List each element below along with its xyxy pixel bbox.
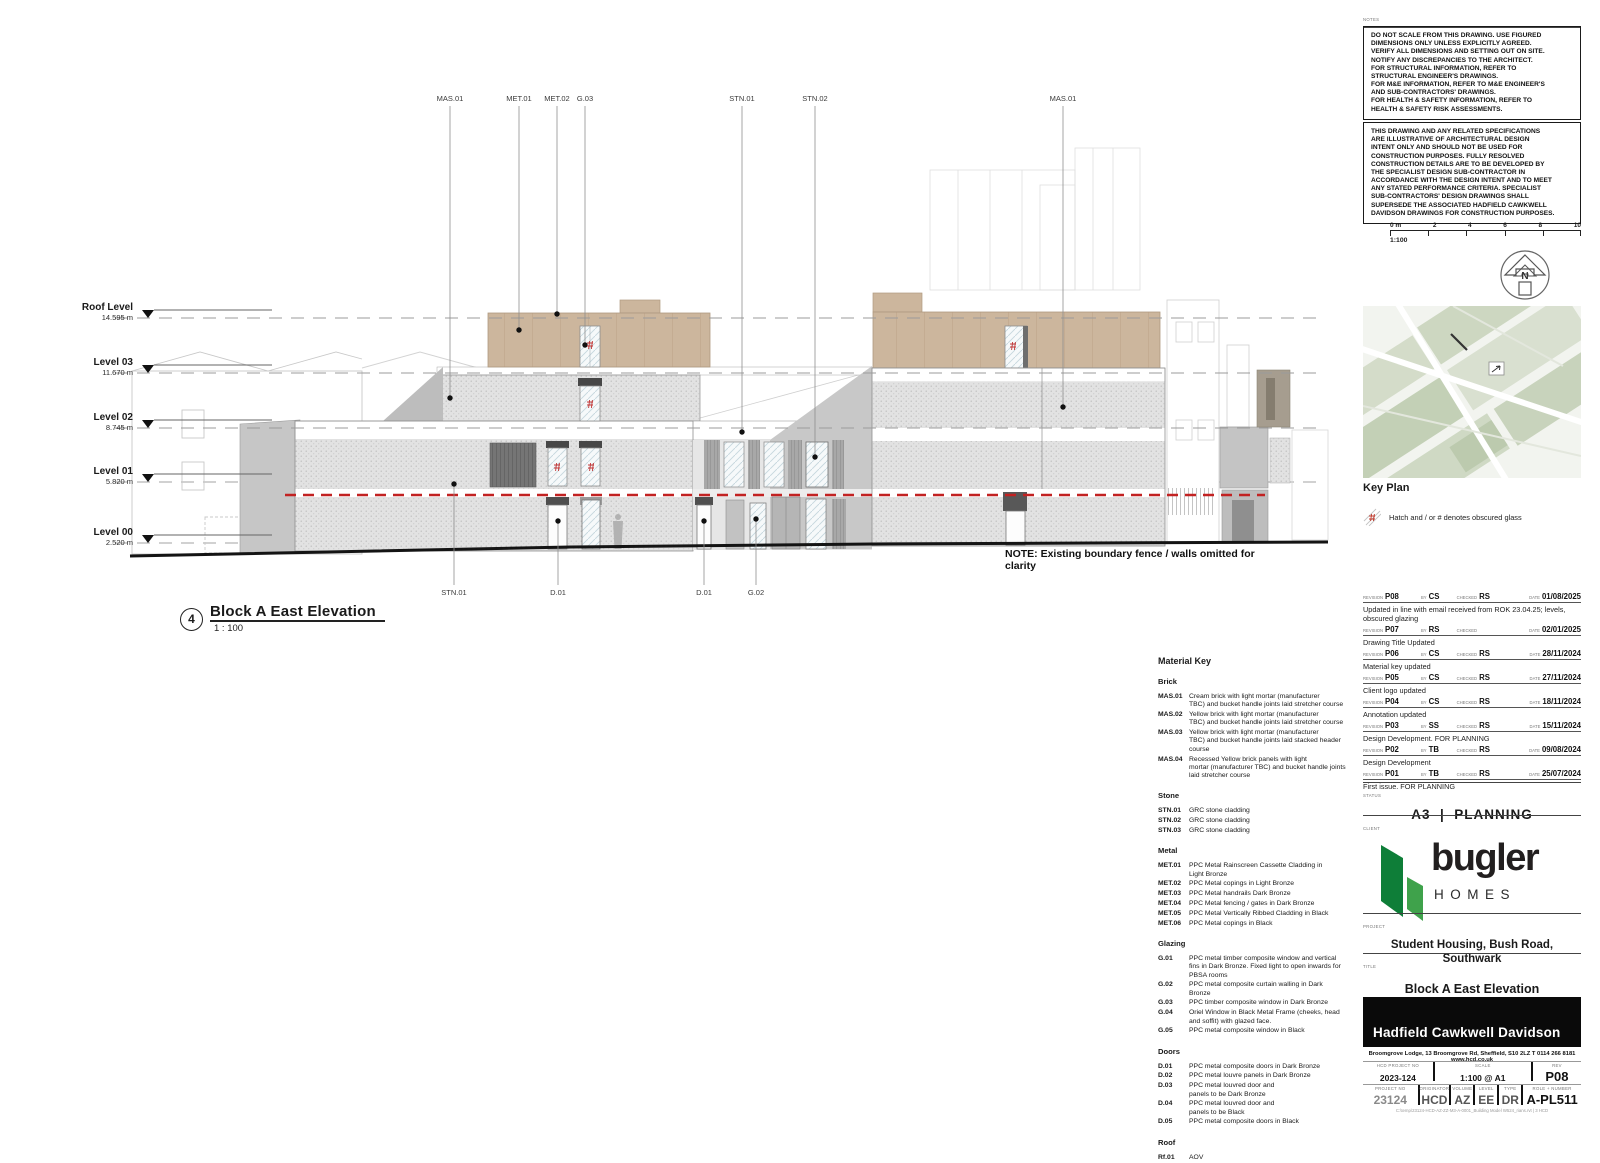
- annotation-g03: G.03: [577, 94, 593, 103]
- material-key-item: D.04PPC metal louvred door and panels to…: [1158, 1100, 1354, 1117]
- architect-logo-box: Hadfield Cawkwell Davidson: [1363, 997, 1581, 1047]
- material-key-item: G.05PPC metal composite window in Black: [1158, 1027, 1354, 1035]
- field-originator: ORIGINATOR HCD: [1418, 1085, 1450, 1105]
- client-logo-wordmark: bugler: [1431, 837, 1538, 880]
- annotation-mas01-right: MAS.01: [1050, 94, 1077, 103]
- revision-description: Design Development: [1363, 756, 1581, 769]
- material-key-item: MAS.02Yellow brick with light mortar (ma…: [1158, 711, 1354, 728]
- revision-row: REVISIONP08BYCSCHECKEDRSDATE01/08/2025: [1363, 592, 1581, 603]
- hatch-legend-icon: [1363, 508, 1381, 526]
- field-role-number: ROLE + NUMBER A-PL511: [1521, 1085, 1581, 1105]
- revision-row: REVISIONP04BYCSCHECKEDRSDATE18/11/2024: [1363, 697, 1581, 708]
- annotation-d01-b: D.01: [696, 588, 712, 597]
- material-key-item: MET.01PPC Metal Rainscreen Cassette Clad…: [1158, 862, 1354, 879]
- material-key-item: MAS.01Cream brick with light mortar (man…: [1158, 693, 1354, 710]
- scale-tick: 0 m: [1390, 222, 1401, 229]
- viewport-number: 4: [180, 608, 203, 631]
- material-key-item: STN.02GRC stone cladding: [1158, 817, 1354, 825]
- scale-bar: 0 m 2 4 6 8 10 1:100: [1390, 222, 1581, 244]
- revision-description: Drawing Title Updated: [1363, 636, 1581, 649]
- level-label-03: Level 0311.670 m: [33, 357, 133, 377]
- annotation-mas01-left: MAS.01: [437, 94, 464, 103]
- material-key-item: G.04Oriel Window in Black Metal Frame (c…: [1158, 1009, 1354, 1026]
- material-key-item: D.03PPC metal louvred door and panels to…: [1158, 1082, 1354, 1099]
- revision-description: Updated in line with email received from…: [1363, 603, 1581, 625]
- annotation-stn01-top: STN.01: [729, 94, 754, 103]
- key-plan-map-graphic: [1363, 306, 1581, 478]
- revision-description: Design Development. FOR PLANNING: [1363, 732, 1581, 745]
- material-key-item: MET.04PPC Metal fencing / gates in Dark …: [1158, 900, 1354, 908]
- key-plan-map: [1363, 306, 1581, 478]
- material-key-item: G.03PPC timber composite window in Dark …: [1158, 999, 1354, 1007]
- architect-name: Hadfield Cawkwell Davidson: [1373, 1025, 1561, 1040]
- material-key-item: D.05PPC metal composite doors in Black: [1158, 1118, 1354, 1126]
- material-key-item: G.02PPC metal composite curtain walling …: [1158, 981, 1354, 998]
- scale-tick: 2: [1433, 222, 1437, 229]
- background-context-outlines: [930, 148, 1140, 290]
- field-level: LEVEL EE: [1473, 1085, 1497, 1105]
- file-path-footer: C:\temp\23124-HCD-AZ-ZZ-M3-A-0001_Buildi…: [1360, 1108, 1584, 1113]
- context-roofline: [362, 352, 478, 368]
- disclaimer-notes-box: THIS DRAWING AND ANY RELATED SPECIFICATI…: [1363, 122, 1581, 224]
- scale-tick: 6: [1503, 222, 1507, 229]
- revision-row: REVISIONP07BYRSCHECKEDDATE02/01/2025: [1363, 625, 1581, 636]
- material-key-item: STN.01GRC stone cladding: [1158, 807, 1354, 815]
- annotation-stn01-bottom: STN.01: [441, 588, 466, 597]
- level-label-02: Level 028.745 m: [33, 412, 133, 432]
- scale-tick: 10: [1574, 222, 1581, 229]
- level-label-roof: Roof Level14.595 m: [33, 302, 133, 322]
- drawing-sheet: { "notes": { "label": "NOTES", "box1": "…: [0, 0, 1600, 1130]
- material-key-metal-heading: Metal: [1158, 846, 1354, 855]
- block-a-massing: [240, 293, 1165, 553]
- client-section: CLIENT bugler HOMES: [1363, 815, 1581, 927]
- revision-row: REVISIONP03BYSSCHECKEDRSDATE15/11/2024: [1363, 721, 1581, 732]
- revision-row: REVISIONP06BYCSCHECKEDRSDATE28/11/2024: [1363, 649, 1581, 660]
- material-key-stone-heading: Stone: [1158, 791, 1354, 800]
- material-key-item: G.01PPC metal timber composite window an…: [1158, 955, 1354, 980]
- material-key-item: MET.05PPC Metal Vertically Ribbed Claddi…: [1158, 910, 1354, 918]
- field-volume: VOLUME AZ: [1449, 1085, 1473, 1105]
- field-project-no: PROJECT NO 23124: [1363, 1085, 1418, 1105]
- material-key-item: Rf.01AOV: [1158, 1154, 1354, 1162]
- viewport-title-rule: [210, 620, 385, 622]
- scale-ratio: 1:100: [1390, 237, 1581, 244]
- material-key-item: D.01PPC metal composite doors in Dark Br…: [1158, 1063, 1354, 1071]
- field-scale: SCALE 1:100 @ A1: [1433, 1062, 1531, 1081]
- viewport-scale: 1 : 100: [214, 623, 243, 634]
- material-key-item: MET.02PPC Metal copings in Light Bronze: [1158, 880, 1354, 888]
- material-key-glazing-heading: Glazing: [1158, 939, 1354, 948]
- key-plan-title: Key Plan: [1363, 482, 1409, 494]
- scale-tick: 8: [1539, 222, 1543, 229]
- revision-description: Client logo updated: [1363, 684, 1581, 697]
- drawing-note: NOTE: Existing boundary fence / walls om…: [1005, 548, 1265, 572]
- general-notes-box: DO NOT SCALE FROM THIS DRAWING. USE FIGU…: [1363, 26, 1581, 120]
- revision-table: REVISIONP08BYCSCHECKEDRSDATE01/08/2025 U…: [1363, 592, 1581, 793]
- bugler-logo-mark: [1379, 843, 1425, 921]
- revision-row: REVISIONP02BYTBCHECKEDRSDATE09/08/2024: [1363, 745, 1581, 756]
- notes-section-label: NOTES: [1363, 8, 1581, 28]
- annotation-met01: MET.01: [506, 94, 531, 103]
- material-key-title: Material Key: [1158, 656, 1354, 666]
- field-type: TYPE DR: [1497, 1085, 1521, 1105]
- field-rev: REV P08: [1531, 1062, 1581, 1081]
- revision-row: REVISIONP05BYCSCHECKEDRSDATE27/11/2024: [1363, 673, 1581, 684]
- north-arrow-icon: N: [1498, 248, 1552, 302]
- context-right: [1167, 300, 1328, 543]
- scale-bar-line: [1390, 230, 1581, 236]
- revision-row: REVISIONP01BYTBCHECKEDRSDATE25/07/2024: [1363, 769, 1581, 780]
- title-block-row-2: PROJECT NO 23124 ORIGINATOR HCD VOLUME A…: [1363, 1084, 1581, 1105]
- annotation-g02: G.02: [748, 588, 764, 597]
- annotation-d01-a: D.01: [550, 588, 566, 597]
- material-key-item: MAS.03Yellow brick with light mortar (ma…: [1158, 729, 1354, 754]
- material-key-item: MET.06PPC Metal copings in Black: [1158, 920, 1354, 928]
- annotation-stn02: STN.02: [802, 94, 827, 103]
- viewport-title: Block A East Elevation: [210, 603, 376, 620]
- revision-description: Annotation updated: [1363, 708, 1581, 721]
- field-hcd-project-no: HCD PROJECT NO 2023-124: [1363, 1062, 1433, 1081]
- title-block-row-1: HCD PROJECT NO 2023-124 SCALE 1:100 @ A1…: [1363, 1061, 1581, 1081]
- revision-description: Material key updated: [1363, 660, 1581, 673]
- material-key-brick-heading: Brick: [1158, 677, 1354, 686]
- material-key-doors-heading: Doors: [1158, 1047, 1354, 1056]
- material-key-item: MAS.04Recessed Yellow brick panels with …: [1158, 756, 1354, 781]
- annotation-met02: MET.02: [544, 94, 569, 103]
- material-key-item: MET.03PPC Metal handrails Dark Bronze: [1158, 890, 1354, 898]
- material-key-roof-heading: Roof: [1158, 1138, 1354, 1147]
- material-key: Material Key Brick MAS.01Cream brick wit…: [1158, 656, 1354, 1163]
- title-block-column: NOTES DO NOT SCALE FROM THIS DRAWING. US…: [1360, 0, 1584, 1130]
- client-logo-sub: HOMES: [1434, 887, 1516, 902]
- material-key-item: STN.03GRC stone cladding: [1158, 827, 1354, 835]
- level-label-01: Level 015.820 m: [33, 466, 133, 486]
- obscured-glass-legend: Hatch and / or # denotes obscured glass: [1363, 508, 1522, 526]
- level-label-00: Level 002.520 m: [33, 527, 133, 547]
- material-key-item: D.02PPC metal louvre panels in Dark Bron…: [1158, 1072, 1354, 1080]
- scale-tick: 4: [1468, 222, 1472, 229]
